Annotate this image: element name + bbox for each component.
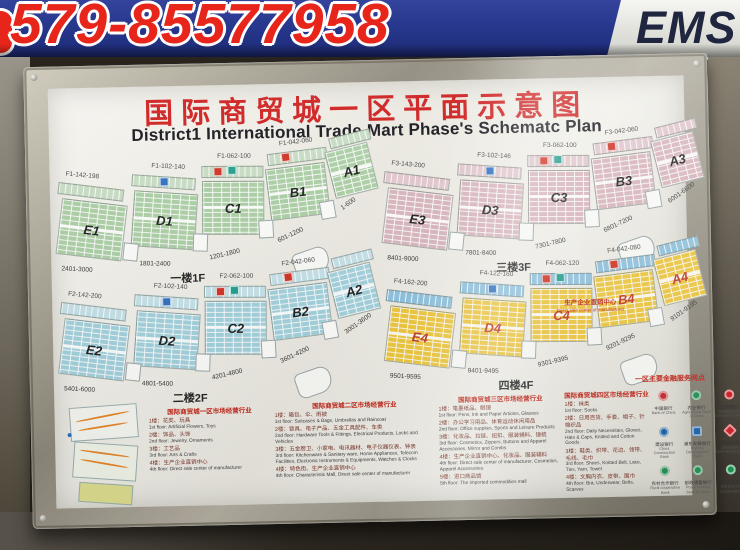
section-label: C4 xyxy=(531,289,591,341)
legend-row: 1楼：箱包、伞、雨披1st floor: Suitcases & Bags, U… xyxy=(275,410,435,426)
stair-block xyxy=(319,200,337,220)
site-overview-block xyxy=(72,441,138,481)
amenity-icon xyxy=(606,141,616,151)
section-block: C4 xyxy=(530,288,592,342)
stall-range-label: 9401-9495 xyxy=(468,367,499,374)
stair-block xyxy=(258,220,274,239)
bank-name-en: China Credit Cooperatives xyxy=(716,485,740,494)
bank-name-en: Postal savings bank of China xyxy=(683,485,713,494)
stair-block xyxy=(321,320,339,340)
stall-range-label: 1801-2400 xyxy=(139,260,170,267)
stair-block xyxy=(122,242,139,261)
legend-row: 4楼：特色街、生产企业直销中心4th floor: Characteristic… xyxy=(276,464,436,480)
legend-row: 1楼：花类、玩具1st floor: Artificial Flowers, T… xyxy=(149,416,271,431)
stall-range-label: 4801-5400 xyxy=(142,380,173,387)
stall-range-label: 7301-7800 xyxy=(535,237,567,251)
legend-title: 国际商贸城三区市场经营行业 xyxy=(438,392,562,405)
section-label: D4 xyxy=(460,298,525,356)
legend-column-1: 国际商贸城一区市场经营行业 1楼：花类、玩具1st floor: Artific… xyxy=(148,404,271,475)
bank-cell: 农村合作银行 Rural cooperative Bank xyxy=(650,463,681,495)
section-block: C3 xyxy=(528,170,590,224)
section-label: E3 xyxy=(383,188,453,249)
dash-marks xyxy=(79,449,131,458)
legend-row: 5楼：进口商品馆5th floor: The imported commodit… xyxy=(440,472,564,487)
bank-cell: 邮政储蓄银行 Postal savings bank of China xyxy=(683,462,714,494)
amenity-icon xyxy=(488,284,497,293)
dash-marks xyxy=(77,421,129,431)
stall-number-label: F4-162-200 xyxy=(394,278,428,288)
stall-number-label: F1-062-100 xyxy=(217,153,251,160)
stair-block xyxy=(645,189,663,209)
amenity-icon xyxy=(160,177,169,186)
stall-number-label: F3-042-060 xyxy=(604,126,638,137)
section-block: E4 xyxy=(384,305,456,368)
stall-number-label: F2-102-140 xyxy=(154,282,188,291)
stair-block xyxy=(448,231,465,250)
stall-number-label: F4-122-160 xyxy=(480,270,514,279)
stall-number-label: F3-143-200 xyxy=(391,160,425,170)
section-block: A4 xyxy=(653,249,707,306)
stair-block xyxy=(125,362,142,381)
dash-marks xyxy=(75,410,130,423)
bank-logo-icon xyxy=(691,390,701,400)
section-label: A1 xyxy=(325,143,377,198)
legend-row: 2楼：饰品、头饰2nd floor: Jewelry, Ornaments xyxy=(149,430,271,445)
amenity-icon xyxy=(553,155,562,164)
section-label: A4 xyxy=(654,250,706,305)
section-block: C1 xyxy=(202,181,264,235)
amenity-icon xyxy=(542,274,551,283)
bank-logo-icon xyxy=(692,426,702,436)
bank-cell: 建设银行 China Construction Bank xyxy=(649,423,680,459)
stall-number-label: F1-042-060 xyxy=(279,136,313,147)
bank-logo-icon xyxy=(726,465,736,475)
amenity-icon xyxy=(227,166,236,175)
stall-range-label: 9201-9295 xyxy=(605,332,636,352)
section-label: D1 xyxy=(132,191,197,249)
direct-sale-annotation: 生产企业直销中心Direct sale center of manufactur… xyxy=(530,298,650,314)
bank-cell: 浦东发展银行 Pudong Development Bank xyxy=(682,422,713,458)
legend-row: 3楼：鞋类、织带、花边、领带、毛线、毛巾3rd floor: Shoes, Kn… xyxy=(565,447,648,474)
stall-range-label: 9301-9395 xyxy=(537,355,569,369)
amenity-icon xyxy=(556,273,565,282)
legend-rows: 1楼：箱包、伞、雨披1st floor: Suitcases & Bags, U… xyxy=(275,410,436,480)
section-label: C1 xyxy=(203,182,263,234)
legend-row: 1楼：袜类1st floor: Socks xyxy=(564,400,646,414)
legend-row: 3楼：化妆品、拉链、纽扣、服装辅料、镜梳3rd floor: Cosmetics… xyxy=(439,432,563,453)
section-label: E1 xyxy=(57,199,127,260)
dash-marks xyxy=(79,458,129,468)
section-block: D3 xyxy=(457,179,525,239)
stall-number-label: F4-062-120 xyxy=(545,260,579,267)
stair-block xyxy=(193,233,209,251)
bank-logo-icon xyxy=(693,465,703,475)
bank-name-en: Rural cooperative Bank xyxy=(650,486,680,495)
legend-row: 3楼：五金厨卫、小家电、电讯器材、电子仪器仪表、钟表3rd floor: Kit… xyxy=(275,444,435,466)
stall-number-label: F3-062-100 xyxy=(543,142,577,149)
bank-cell: 农业银行 Agricultural Bank of China xyxy=(681,387,712,419)
amenity-icon xyxy=(485,166,494,175)
legend-title: 国际商贸城一区市场经营行业 xyxy=(148,404,270,417)
bank-name-en: Bank of China xyxy=(649,411,679,416)
section-block: D2 xyxy=(133,310,201,370)
stair-block xyxy=(451,349,468,368)
bank-cell: 中国信合 China Credit Cooperatives xyxy=(716,461,740,493)
legend-rows: 1楼：花类、玩具1st floor: Artificial Flowers, T… xyxy=(149,416,272,474)
stall-range-label: 1201-1800 xyxy=(209,248,241,262)
stall-number-label: F3-102-146 xyxy=(477,152,511,161)
legend-column-2: 国际商贸城二区市场经营行业 1楼：箱包、伞、雨披1st floor: Suitc… xyxy=(274,398,436,481)
section-label: D3 xyxy=(458,180,523,238)
section-block: E2 xyxy=(58,318,130,381)
stall-number-label: F2-062-100 xyxy=(220,273,254,280)
legend-row: 4楼：文胸内衣、皮带、围巾4th floor: Bra, Underwear, … xyxy=(566,474,648,494)
bank-grid: 中国银行 Bank of China 农业银行 Agricultural Ban… xyxy=(648,386,740,495)
legend-row: 4楼：生产企业直销中心4th floor: Direct sale center… xyxy=(150,458,272,473)
legend-row: 3楼：工艺品3rd floor: Arts & Crafts xyxy=(149,444,271,459)
bank-cell: 稠州商业银行 Chouzhou Commercial Bank xyxy=(715,422,740,458)
legend-row: 2楼：办公学习用品、体育运动休闲用品2nd floor: Office supp… xyxy=(439,418,563,433)
amenity-icon xyxy=(609,259,619,269)
legend-column-4: 国际商贸城四区市场经营行业 1楼：袜类1st floor: Socks2楼：日用… xyxy=(564,388,648,495)
bank-name-en: China Construction Bank xyxy=(649,446,679,459)
stall-range-label: 1-600 xyxy=(340,196,358,211)
legend-rows: 1楼：笔墨纸品、眼镜1st floor: Pens, Ink and Paper… xyxy=(438,404,564,487)
bank-name-en: Chouzhou Commercial Bank xyxy=(715,445,740,454)
stall-number-label: F2-142-200 xyxy=(68,291,102,301)
stall-range-label: 3601-4200 xyxy=(279,345,310,365)
site-overview-block xyxy=(78,482,133,506)
legend-column-3: 国际商贸城三区市场经营行业 1楼：笔墨纸品、眼镜1st floor: Pens,… xyxy=(438,392,564,489)
sign-board: 国际商贸城一区平面示意图 District1 International Tra… xyxy=(23,53,717,529)
amenity-icon xyxy=(162,297,171,306)
site-overview-inset xyxy=(65,403,146,504)
legend-title: 国际商贸城四区市场经营行业 xyxy=(564,388,646,400)
stair-block xyxy=(584,209,600,228)
section-block: E3 xyxy=(381,187,453,250)
bank-name-en: Pudong Development Bank xyxy=(682,446,712,459)
stair-block xyxy=(521,340,537,358)
section-label: E4 xyxy=(385,306,455,367)
site-overview-block xyxy=(69,403,139,442)
section-label: C3 xyxy=(529,171,589,223)
stall-range-label: 4201-4800 xyxy=(211,368,243,382)
section-block: A2 xyxy=(327,262,381,319)
stair-block xyxy=(519,222,535,240)
section-label: D2 xyxy=(134,311,199,369)
stall-range-label: 6801-7200 xyxy=(603,215,634,235)
section-label: E2 xyxy=(59,319,129,380)
amenity-icon xyxy=(281,152,291,162)
stall-range-label: 7801-8400 xyxy=(465,249,496,256)
amenity-icon xyxy=(230,286,239,295)
bank-logo-icon xyxy=(659,426,669,436)
amenity-icon xyxy=(216,287,225,296)
bank-logo-icon xyxy=(724,389,734,399)
legend-row: 2楼：日用百货、手套、帽子、针棉织品2nd floor: Daily Neces… xyxy=(565,414,648,447)
bank-logo-icon xyxy=(660,466,670,476)
bank-logo-icon xyxy=(658,391,668,401)
section-block: D1 xyxy=(131,190,199,250)
section-block: A3 xyxy=(650,131,704,188)
bank-logo-icon xyxy=(723,423,737,437)
bank-cell: 工商银行 Industrial and Commercial Bank xyxy=(714,386,740,418)
legend-row: 4楼：生产企业直销中心、化妆品、服装辅料4th floor: Direct sa… xyxy=(439,452,563,473)
stair-block xyxy=(587,327,603,346)
stall-number-label: F1-142-198 xyxy=(65,171,99,181)
section-label: A3 xyxy=(651,132,703,187)
stair-block xyxy=(261,340,277,359)
top-banner: 579-85577958 EMS xyxy=(0,0,740,57)
bank-name-en: Industrial and Commercial Bank xyxy=(715,409,740,418)
stall-number-label: F1-102-140 xyxy=(151,162,185,171)
amenity-icon xyxy=(283,272,293,282)
stall-range-label: 601-1200 xyxy=(277,226,305,244)
legend-rows: 1楼：袜类1st floor: Socks2楼：日用百货、手套、帽子、针棉织品2… xyxy=(564,400,648,493)
bank-name-en: Agricultural Bank of China xyxy=(682,410,712,419)
section-label: A2 xyxy=(328,263,380,318)
section-block: A1 xyxy=(324,142,378,199)
location-dot xyxy=(68,433,72,437)
amenity-icon xyxy=(213,167,222,176)
section-block: E1 xyxy=(56,198,128,261)
legend-row: 1楼：笔墨纸品、眼镜1st floor: Pens, Ink and Paper… xyxy=(438,404,562,419)
section-block: D4 xyxy=(459,297,527,357)
legend-title: 国际商贸城二区市场经营行业 xyxy=(274,398,434,411)
section-label: C2 xyxy=(206,302,266,354)
bank-cell: 中国银行 Bank of China xyxy=(648,388,679,420)
legend-row: 2楼：锁具、电子产品、五金工具配件、车类2nd floor: Hardware … xyxy=(275,424,435,446)
section-block: C2 xyxy=(205,301,267,355)
amenity-icon xyxy=(539,156,548,165)
stair-block xyxy=(195,353,211,371)
